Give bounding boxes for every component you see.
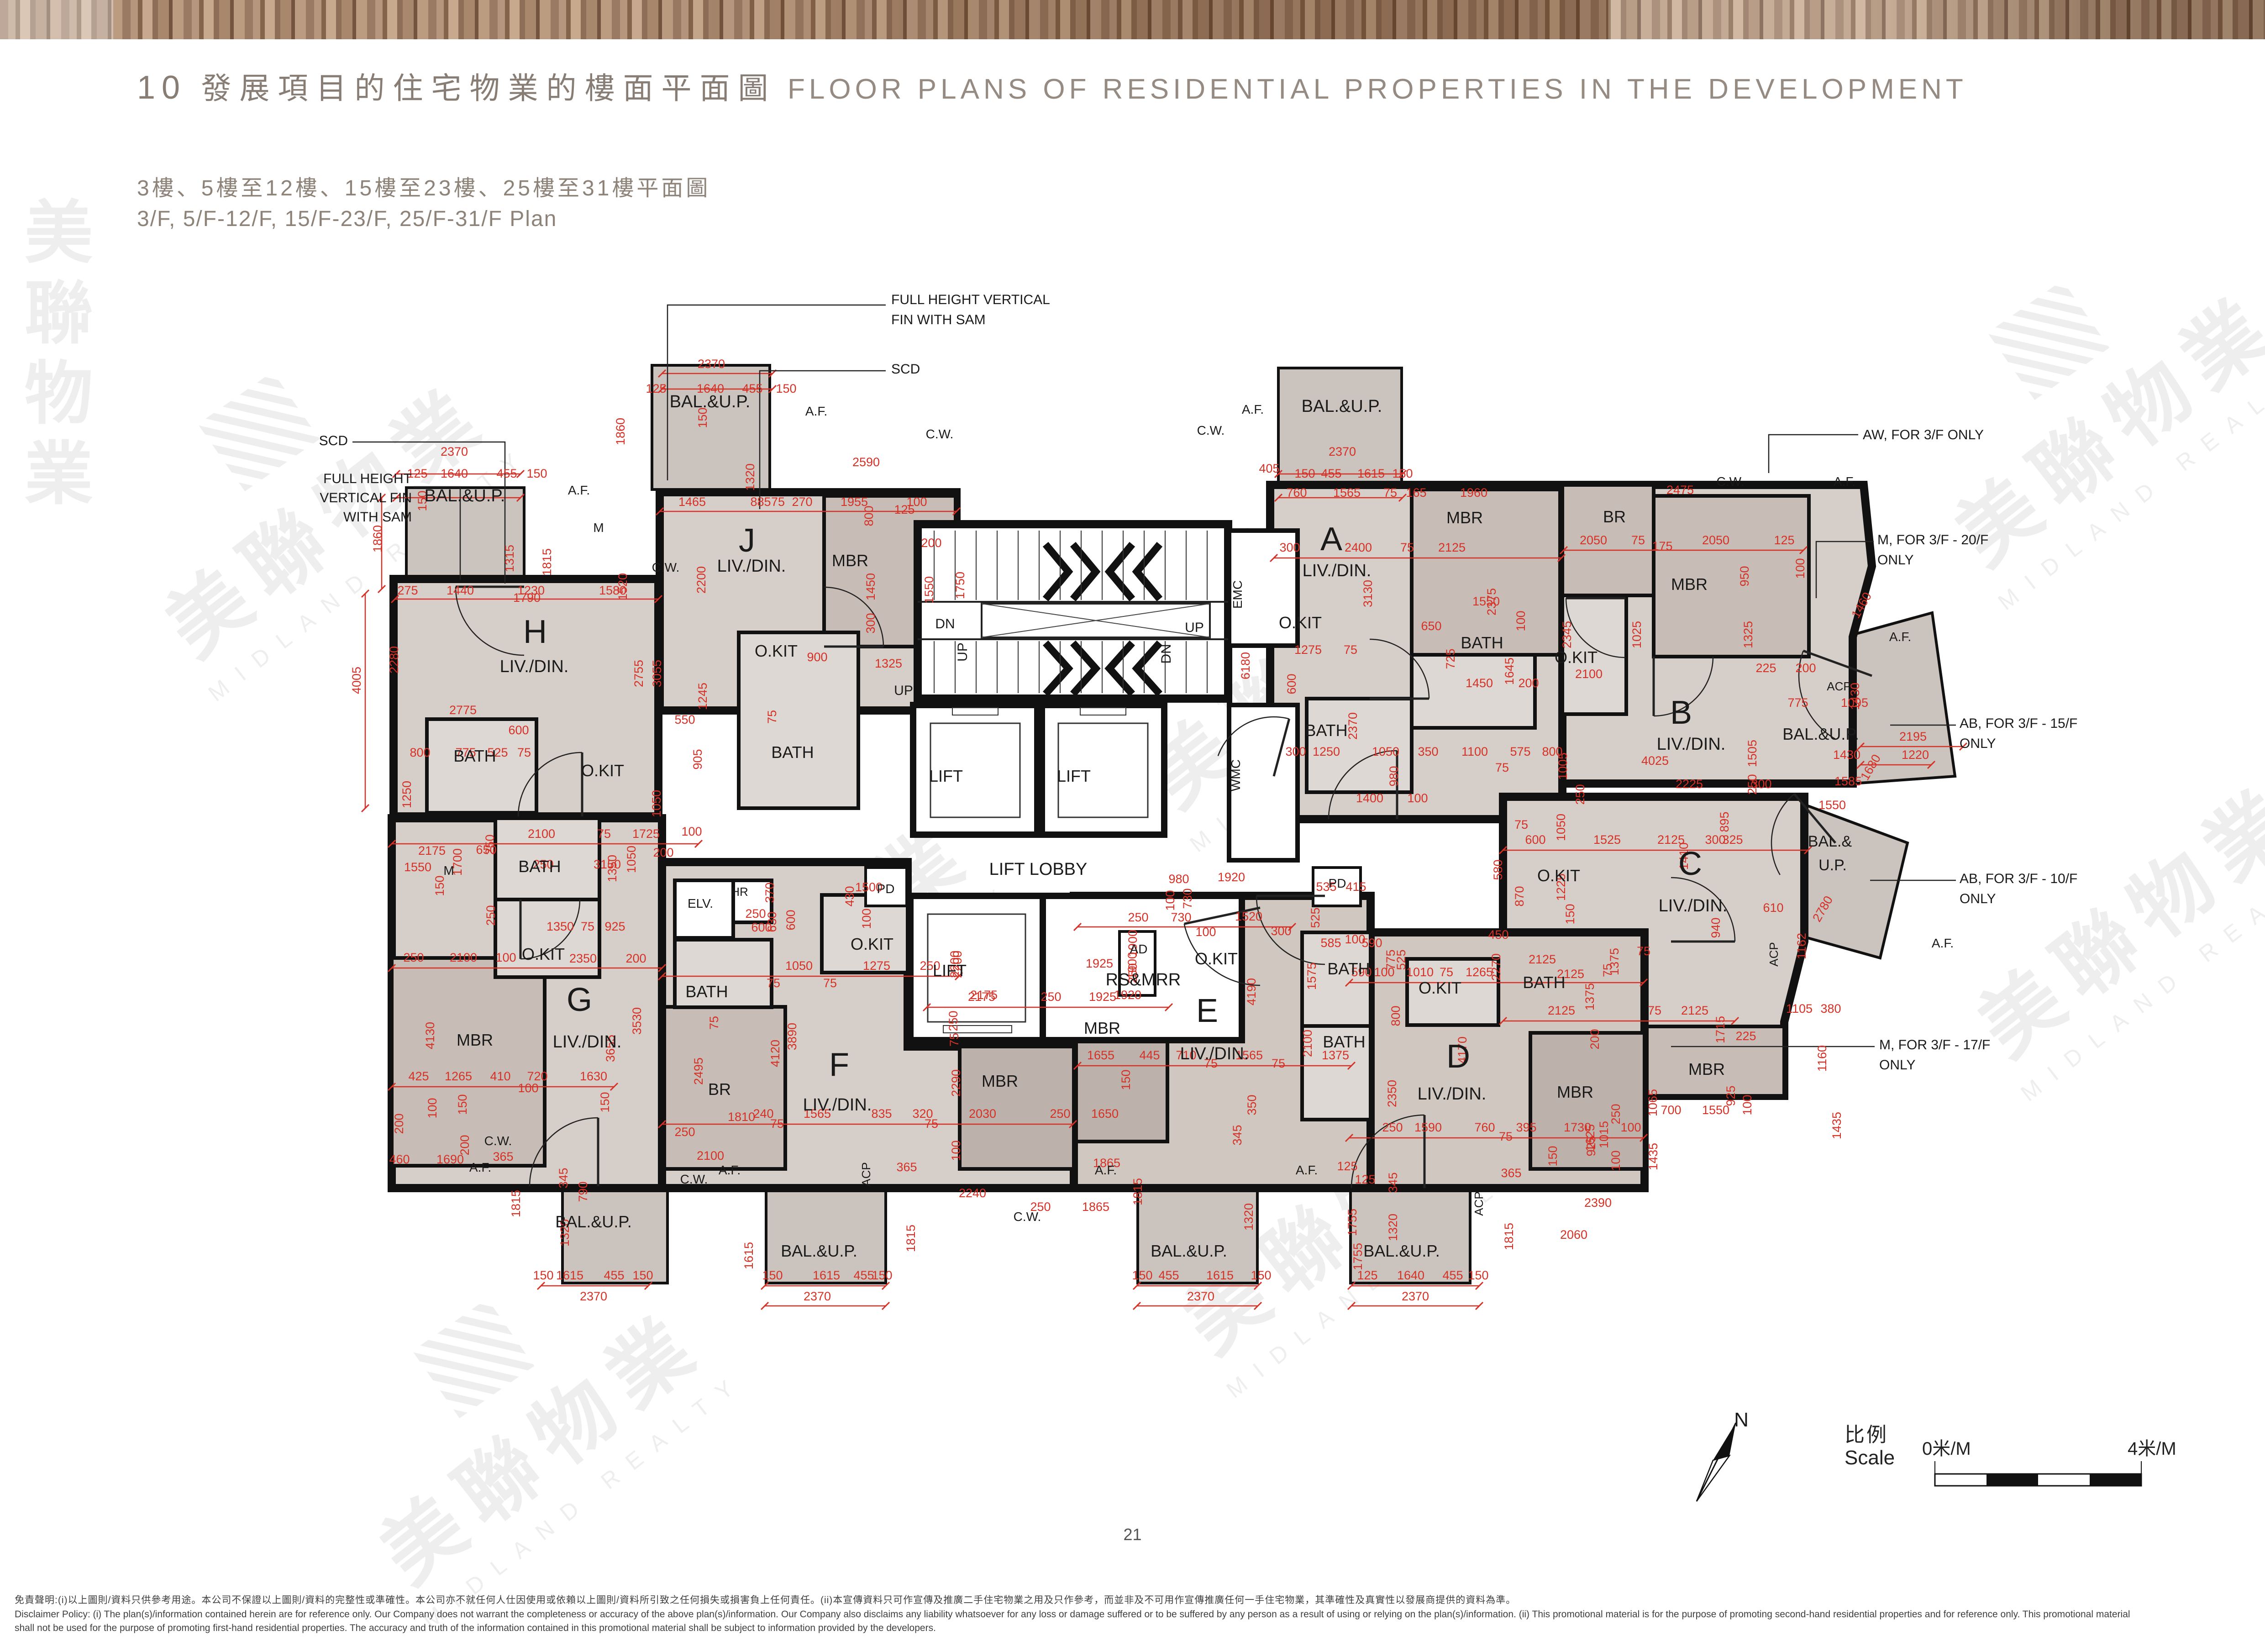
dim-label: 250 xyxy=(1041,990,1061,1004)
dim-label: 455 xyxy=(1442,1268,1463,1282)
dim-label: 365 xyxy=(1501,1166,1521,1180)
plan-label: O.KIT xyxy=(1555,648,1598,667)
dim-label: 600 xyxy=(1525,833,1545,847)
dim-label: 1065 xyxy=(1646,1089,1660,1116)
plan-label: WMC xyxy=(1229,759,1243,791)
dim-label: 600 xyxy=(508,723,529,737)
dim-label: 150 xyxy=(1294,467,1315,480)
plan-label: BATH xyxy=(1461,633,1503,652)
dim-label: 150 xyxy=(1251,1268,1271,1282)
dim-label: 800 xyxy=(862,505,876,526)
dim-label: 1525 xyxy=(1593,833,1621,847)
dim-label: 250 xyxy=(1573,784,1587,805)
dim-label: 760 xyxy=(1286,486,1307,500)
dim-label: 1615 xyxy=(556,1268,583,1282)
dim-label: 125 xyxy=(1357,1268,1377,1282)
room-g-mbr xyxy=(392,958,545,1166)
plan-label: WITH SAM xyxy=(343,510,412,525)
dim-label: 2350 xyxy=(1385,1080,1399,1107)
dim-label: 100 xyxy=(1407,791,1428,805)
dim-label: 1505 xyxy=(1745,740,1759,767)
dim-label: 1350 xyxy=(605,855,619,882)
dim-label: 1630 xyxy=(580,1069,607,1083)
lift-door xyxy=(1080,708,1126,715)
dim-label: 1860 xyxy=(371,525,384,552)
plan-label: D xyxy=(1446,1038,1470,1075)
dim-label: 2755 xyxy=(632,660,646,687)
dim-label: 650 xyxy=(1421,619,1441,633)
plan-label: HR xyxy=(731,885,748,899)
dim-label: 980 xyxy=(1168,872,1189,886)
dim-label: 300 xyxy=(1279,541,1300,554)
compass-arrowhead xyxy=(1713,1423,1736,1460)
plan-label: ACP xyxy=(1767,942,1781,966)
dim-label: 1275 xyxy=(1294,643,1322,657)
dim-label: 940 xyxy=(1709,917,1723,938)
dim-label: 455 xyxy=(1158,1268,1179,1282)
plan-label: BAL.&U.P. xyxy=(555,1212,631,1231)
dim-label: 250 xyxy=(745,907,766,921)
plan-label: G xyxy=(567,982,592,1018)
dim-label: 100 xyxy=(1793,558,1807,579)
dim-label: 250 xyxy=(1745,774,1759,794)
plan-label: FULL HEIGHT xyxy=(323,471,412,486)
dim-label: 2240 xyxy=(959,1186,986,1200)
dim-label: 455 xyxy=(853,1268,874,1282)
plan-label: SCD xyxy=(891,362,920,377)
dim-label: 2125 xyxy=(1529,952,1556,966)
dim-label: 885 xyxy=(750,495,771,509)
plan-label: DN xyxy=(1159,644,1174,663)
dim-label: 1925 xyxy=(1086,957,1113,970)
dim-label: 1615 xyxy=(742,1242,756,1269)
dim-label: 1615 xyxy=(813,1268,840,1282)
dim-label: 75 xyxy=(597,827,611,841)
plan-label: UP xyxy=(894,683,913,698)
dim-label: 1550 xyxy=(1818,798,1846,812)
plan-label: F xyxy=(829,1047,849,1083)
plan-label: BAL.& xyxy=(1808,833,1852,850)
dim-label: 100 xyxy=(1163,890,1177,910)
plan-label: MBR xyxy=(1557,1083,1593,1101)
dim-label: 100 xyxy=(1195,925,1216,939)
plan-label: LIV./DIN. xyxy=(500,657,569,676)
dim-label: 1815 xyxy=(1131,1178,1145,1205)
dim-label: 2060 xyxy=(1560,1228,1587,1242)
plan-label: MBR xyxy=(1446,508,1483,527)
dim-label: 800 xyxy=(410,746,430,759)
dim-label: 585 xyxy=(1320,936,1341,950)
dim-label: 75 xyxy=(770,1117,784,1131)
dim-label: 1550 xyxy=(1472,595,1500,608)
dim-label: 630 xyxy=(765,911,779,932)
dim-label: 75 xyxy=(1383,486,1397,500)
plan-label: LIFT LOBBY xyxy=(989,860,1088,879)
dim-label: 1010 xyxy=(1406,965,1434,979)
plan-label: FIN WITH SAM xyxy=(891,312,986,327)
dim-label: 270 xyxy=(792,495,812,509)
lift-door xyxy=(952,708,998,715)
brochure-page: { "header":{"section_no":"10","title_zh"… xyxy=(0,0,2265,1652)
dim-label: 430 xyxy=(843,886,857,906)
dim-label: 1250 xyxy=(1313,745,1340,758)
dim-label: 165 xyxy=(1406,486,1426,500)
dim-label: 900 xyxy=(807,650,827,664)
plan-label: M, FOR 3/F - 17/F xyxy=(1879,1037,1990,1052)
dim-label: 3055 xyxy=(650,660,664,687)
plan-label: SCD xyxy=(319,433,348,448)
dim-label: 2290 xyxy=(949,1069,963,1097)
dim-label: 1275 xyxy=(863,959,890,973)
dim-label: 125 xyxy=(1337,1159,1357,1173)
dim-label: 1320 xyxy=(743,463,757,491)
dim-label: 300 xyxy=(1271,924,1291,938)
plan-label: O.KIT xyxy=(1419,979,1461,997)
dim-label: 200 xyxy=(921,536,941,550)
dim-label: 1750 xyxy=(953,572,967,599)
dim-label: 2175 xyxy=(418,844,446,858)
plan-label: A.F. xyxy=(719,1163,741,1177)
dim-label: 1050 xyxy=(625,846,638,873)
dim-label: 575 xyxy=(1510,745,1530,758)
dim-label: 150 xyxy=(1468,1268,1488,1282)
plan-label: ACP xyxy=(1472,1191,1486,1215)
dim-label: 445 xyxy=(1139,1048,1160,1062)
dim-label: 1160 xyxy=(1815,1045,1829,1072)
dim-label: 75 xyxy=(581,920,594,933)
dim-label: 200 xyxy=(625,952,646,965)
dim-label: 1645 xyxy=(1503,658,1516,685)
plan-label: M xyxy=(593,521,604,535)
plan-label: C.W. xyxy=(680,1172,708,1186)
plan-label: ONLY xyxy=(1877,552,1913,568)
dim-label: 75 xyxy=(925,1117,938,1131)
dim-label: 365 xyxy=(493,1150,513,1163)
dim-label: 1960 xyxy=(1460,486,1487,500)
dim-label: 345 xyxy=(1386,1172,1400,1193)
dim-label: 1400 xyxy=(1356,791,1383,805)
plan-label: O.KIT xyxy=(851,935,893,953)
dim-label: 345 xyxy=(1230,1125,1244,1145)
dim-label: 1575 xyxy=(1305,963,1319,990)
dim-label: 2200 xyxy=(694,566,708,594)
plan-label: A.F. xyxy=(1834,474,1855,489)
dim-label: 600 xyxy=(784,910,798,930)
dim-label: 410 xyxy=(490,1069,510,1083)
plan-label: U.P. xyxy=(1818,857,1847,874)
plan-label: BAL.&U.P. xyxy=(781,1242,857,1260)
dim-label: 250 xyxy=(946,1010,960,1031)
dim-label: 4130 xyxy=(423,1022,437,1049)
plan-label: C.W. xyxy=(1717,474,1745,489)
dim-label: 1615 xyxy=(1206,1268,1234,1282)
plan-label: C.W. xyxy=(926,427,954,441)
dim-label: 100 xyxy=(681,825,702,838)
dim-label: 150 xyxy=(526,467,547,480)
dim-label: 200 xyxy=(392,1113,406,1134)
dim-label: 2195 xyxy=(1899,730,1927,743)
dim-label: 2370 xyxy=(804,1289,831,1303)
dim-label: 350 xyxy=(1418,745,1438,758)
dim-label: 75 xyxy=(765,710,779,724)
plan-label: N xyxy=(1734,1409,1749,1431)
dim-label: 1440 xyxy=(447,584,474,597)
plan-label: C.W. xyxy=(1014,1210,1041,1224)
plan-label: MBR xyxy=(457,1031,493,1049)
dim-label: 225 xyxy=(1755,661,1776,675)
dim-label: 450 xyxy=(1488,928,1508,942)
plan-label: M xyxy=(443,863,454,878)
dim-label: 100 xyxy=(906,495,927,509)
dim-label: 2345 xyxy=(1560,621,1574,648)
dim-label: 1860 xyxy=(614,418,627,445)
dim-label: 250 xyxy=(403,951,424,964)
dim-label: 1230 xyxy=(517,584,545,597)
dim-label: 175 xyxy=(1652,539,1672,553)
plan-label: ACP xyxy=(859,1162,873,1186)
dim-label: 1585 xyxy=(1834,774,1862,788)
dim-label: 250 xyxy=(1050,1107,1070,1121)
dim-label: 1050 xyxy=(1554,814,1568,841)
plan-label: ELV. xyxy=(688,896,713,910)
plan-label: BAL.&U.P. xyxy=(425,486,505,505)
plan-label: BAL.&U.P. xyxy=(670,392,751,411)
plan-label: MBR xyxy=(982,1072,1018,1090)
dim-label: 75 xyxy=(1440,965,1453,979)
plan-label: RS&MRR xyxy=(1106,970,1181,989)
dim-label: 1565 xyxy=(1333,486,1361,500)
dim-label: 1430 xyxy=(1833,748,1860,762)
dim-label: 1815 xyxy=(540,548,554,576)
dim-label: 100 xyxy=(426,1098,439,1118)
dim-label: 1375 xyxy=(1608,948,1621,975)
dim-label: 775 xyxy=(1787,696,1808,710)
dim-label: 730 xyxy=(1171,910,1191,924)
plan-label: VERTICAL FIN xyxy=(320,490,412,505)
dim-label: 1590 xyxy=(1414,1121,1442,1134)
dim-label: 895 xyxy=(1718,811,1731,832)
dim-label: 1105 xyxy=(1786,1002,1813,1015)
plan-label: LIV./DIN. xyxy=(1303,561,1372,580)
dim-label: 415 xyxy=(1345,880,1366,894)
plan-label: LIV./DIN. xyxy=(1659,896,1728,915)
dim-label: 1315 xyxy=(503,545,516,572)
plan-label: O.KIT xyxy=(1279,613,1322,632)
dim-label: 1655 xyxy=(1087,1048,1114,1062)
dim-label: 2100 xyxy=(1575,667,1603,681)
dim-label: 3890 xyxy=(785,1023,799,1050)
dim-label: 4120 xyxy=(768,1040,782,1067)
plan-label: BATH xyxy=(1523,973,1565,992)
dim-label: 150 xyxy=(1546,1146,1560,1166)
dim-label: 2050 xyxy=(1580,533,1607,547)
dim-label: 1245 xyxy=(696,683,709,710)
dim-label: 150 xyxy=(776,382,796,395)
dim-label: 1755 xyxy=(1351,1243,1365,1270)
dim-label: 2100 xyxy=(528,827,555,841)
dim-label: 870 xyxy=(1513,886,1526,906)
dim-label: 200 xyxy=(1588,1029,1602,1049)
plan-label: A.F. xyxy=(1242,402,1264,416)
plan-label: MBR xyxy=(1671,575,1708,594)
dim-label: 1320 xyxy=(1242,1203,1256,1231)
dim-label: 1815 xyxy=(904,1225,918,1252)
dim-label: 1920 xyxy=(1218,870,1245,884)
dim-label: 2590 xyxy=(852,455,880,469)
plan-label: EMC xyxy=(1230,580,1245,609)
dim-label: 3130 xyxy=(1361,580,1375,607)
dim-label: 2270 xyxy=(1489,953,1503,981)
dim-label: 150 xyxy=(632,1268,653,1282)
dim-label: 250 xyxy=(483,834,497,855)
dim-label: 1640 xyxy=(441,467,468,480)
dim-label: 600 xyxy=(1285,673,1298,694)
dim-label: 2475 xyxy=(1666,483,1694,497)
dim-label: 200 xyxy=(653,846,673,859)
plan-label: BR xyxy=(1603,507,1626,526)
dim-label: 200 xyxy=(1795,661,1816,675)
dim-label: 75 xyxy=(1631,533,1645,547)
dim-label: 1865 xyxy=(1082,1200,1109,1214)
plan-label: O.KIT xyxy=(1537,866,1580,885)
dim-label: 1550 xyxy=(404,860,431,874)
plan-label: ONLY xyxy=(1960,891,1996,906)
plan-label: A.F. xyxy=(1095,1163,1117,1177)
plan-label: LIV./DIN. xyxy=(1180,1044,1249,1063)
dim-label: 1435 xyxy=(1830,1112,1844,1139)
plan-label: O.KIT xyxy=(522,945,565,963)
dim-label: 75 xyxy=(1344,643,1357,657)
dim-label: 200 xyxy=(1518,676,1539,690)
dim-label: 3530 xyxy=(630,1007,644,1035)
plan-label: A.F. xyxy=(1932,936,1954,950)
plan-label: BAL.&U.P. xyxy=(1782,725,1859,743)
dim-label: 75 xyxy=(1514,818,1528,831)
dim-label: 345 xyxy=(557,1168,570,1188)
room-bal-c xyxy=(1804,805,1908,958)
plan-label: UP xyxy=(1185,620,1204,635)
dim-label: 75 xyxy=(947,1033,961,1047)
dim-label: 1250 xyxy=(400,781,414,808)
dim-label: 1265 xyxy=(445,1069,472,1083)
plan-label: AB, FOR 3/F - 15/F xyxy=(1960,716,2077,731)
dim-label: 150 xyxy=(872,1268,892,1282)
dim-label: 75 xyxy=(707,1016,721,1030)
dim-label: 2030 xyxy=(969,1107,996,1121)
dim-label: 1650 xyxy=(1091,1107,1119,1121)
dim-label: 2280 xyxy=(387,646,401,673)
plan-label: BATH xyxy=(685,982,728,1001)
dim-label: 2175 xyxy=(970,988,998,1002)
dim-label: 2100 xyxy=(697,1149,724,1163)
dim-label: 1925 xyxy=(1089,990,1116,1004)
dim-label: 150 xyxy=(762,1268,783,1282)
room-stairs xyxy=(918,524,1228,699)
dim-label: 1815 xyxy=(509,1190,523,1217)
plan-label: C xyxy=(1678,846,1702,882)
dim-label: 1050 xyxy=(650,790,663,817)
plan-label: LIV./DIN. xyxy=(1657,735,1726,754)
dim-label: 425 xyxy=(408,1069,429,1083)
plan-label: A.F. xyxy=(1296,1163,1318,1177)
plan-label: J xyxy=(739,522,755,559)
dim-label: 1730 xyxy=(1564,1121,1591,1134)
plan-label: LIFT xyxy=(933,961,967,980)
plan-label: O.KIT xyxy=(755,642,798,660)
dim-label: 455 xyxy=(1321,467,1341,480)
dim-label: 1640 xyxy=(1397,1268,1424,1282)
dim-label: 1520 xyxy=(1235,910,1262,923)
plan-label: PD xyxy=(877,882,895,896)
dim-label: 150 xyxy=(456,1094,469,1115)
dim-label: 730 xyxy=(1181,888,1194,909)
dim-label: 2370 xyxy=(580,1289,607,1303)
plan-label: MBR xyxy=(832,551,868,570)
dim-label: 380 xyxy=(1820,1002,1841,1015)
dim-label: 925 xyxy=(604,920,625,933)
dim-label: 1450 xyxy=(1466,676,1493,690)
dim-label: 4025 xyxy=(1641,754,1669,768)
dim-label: 75 xyxy=(1648,1004,1661,1017)
dim-label: 725 xyxy=(1444,648,1457,669)
plan-label: H xyxy=(523,614,547,650)
dim-label: 2495 xyxy=(692,1057,705,1085)
room-g-okit xyxy=(495,900,599,977)
dim-label: 2400 xyxy=(1345,541,1372,554)
dim-label: 590 xyxy=(1361,936,1382,950)
annotation-leader xyxy=(1769,435,1858,473)
dim-label: 225 xyxy=(1735,1029,1756,1043)
dim-label: 835 xyxy=(871,1107,892,1121)
dim-label: 610 xyxy=(1763,901,1783,915)
dim-label: 2370 xyxy=(1187,1289,1214,1303)
dim-label: 75 xyxy=(823,976,837,990)
plan-label: BAL.&U.P. xyxy=(1151,1242,1227,1260)
plan-label: AW, FOR 3/F ONLY xyxy=(1863,427,1984,442)
dim-label: 1050 xyxy=(1372,745,1399,758)
dim-label: 1725 xyxy=(632,827,660,841)
dim-label: 925 xyxy=(1724,1085,1738,1106)
plan-label: BATH xyxy=(1327,959,1370,978)
plan-label: FULL HEIGHT VERTICAL xyxy=(891,292,1050,307)
dim-label: 1690 xyxy=(436,1152,464,1166)
dim-label: 1325 xyxy=(1741,621,1755,648)
dim-label: 2370 xyxy=(698,357,725,371)
dim-label: 2370 xyxy=(1329,445,1356,458)
plan-label: A.F. xyxy=(1889,630,1911,644)
dim-label: 75 xyxy=(1272,1057,1285,1070)
dim-label: 250 xyxy=(1128,910,1148,924)
dim-label: 1320 xyxy=(1386,1214,1400,1241)
dim-label: 100 xyxy=(1514,610,1528,631)
plan-label: C.W. xyxy=(1197,423,1225,437)
dim-label: 760 xyxy=(1474,1121,1495,1134)
plan-label: MBR xyxy=(1084,1019,1120,1037)
dim-label: 4190 xyxy=(1245,978,1258,1005)
dim-label: 1005 xyxy=(1556,752,1570,780)
scale-bar-segment xyxy=(2090,1474,2141,1486)
dim-label: 925 xyxy=(1584,1136,1598,1156)
plan-label: BATH xyxy=(771,743,814,762)
dim-label: 365 xyxy=(896,1160,917,1174)
dim-label: 75 xyxy=(517,746,531,759)
plan-label: DN xyxy=(935,616,955,631)
dim-label: 1325 xyxy=(875,657,902,670)
plan-label: A.F. xyxy=(568,483,590,497)
dim-label: 2100 xyxy=(1301,1030,1314,1057)
dim-label: 980 xyxy=(1387,766,1401,786)
plan-label: BATH xyxy=(1305,721,1347,740)
